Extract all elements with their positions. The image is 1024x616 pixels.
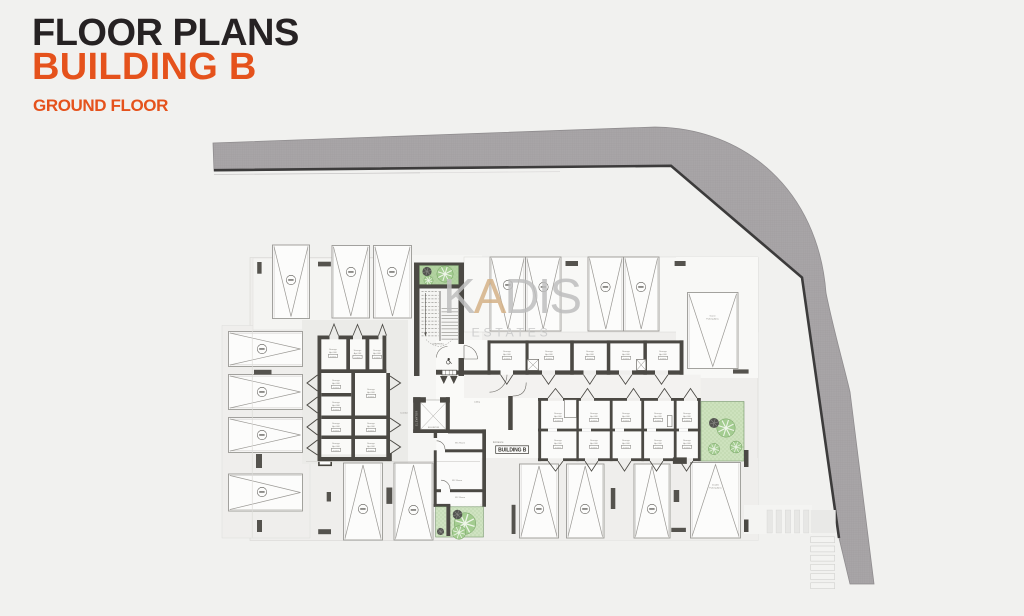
svg-text:0.00m: 0.00m bbox=[333, 387, 339, 389]
svg-text:Apt 000: Apt 000 bbox=[590, 442, 598, 445]
svg-text:KADIS: KADIS bbox=[443, 270, 580, 324]
svg-text:0.00m: 0.00m bbox=[591, 447, 597, 449]
svg-text:Entrance: Entrance bbox=[493, 440, 504, 444]
svg-text:Storage: Storage bbox=[683, 412, 691, 415]
svg-text:Storage: Storage bbox=[622, 412, 630, 415]
svg-text:0.00m: 0.00m bbox=[333, 450, 339, 452]
svg-text:BUILDING B: BUILDING B bbox=[498, 447, 527, 453]
svg-text:Apt 000: Apt 000 bbox=[332, 382, 340, 385]
svg-text:0.00m: 0.00m bbox=[684, 447, 690, 449]
svg-text:Apt 000: Apt 000 bbox=[367, 425, 375, 428]
svg-text:Storage: Storage bbox=[554, 439, 562, 442]
svg-text:Storage: Storage bbox=[654, 412, 662, 415]
svg-text:Apt 000: Apt 000 bbox=[503, 353, 511, 356]
svg-text:0.00m: 0.00m bbox=[684, 420, 690, 422]
svg-text:0.00m: 0.00m bbox=[655, 420, 661, 422]
svg-text:Storage: Storage bbox=[659, 350, 667, 353]
svg-text:Apt 000: Apt 000 bbox=[622, 442, 630, 445]
svg-text:0.00m: 0.00m bbox=[623, 447, 629, 449]
svg-text:0.00m: 0.00m bbox=[623, 358, 629, 360]
svg-text:Lobby: Lobby bbox=[474, 402, 481, 404]
svg-text:Apt 000: Apt 000 bbox=[332, 445, 340, 448]
svg-text:Apt 000: Apt 000 bbox=[545, 353, 553, 356]
svg-text:Storage: Storage bbox=[329, 348, 337, 351]
svg-text:Storage: Storage bbox=[373, 349, 381, 352]
svg-text:Storage: Storage bbox=[622, 439, 630, 442]
svg-text:Parking Area: Parking Area bbox=[706, 318, 719, 321]
svg-text:0.00m: 0.00m bbox=[354, 357, 360, 359]
svg-text:0.00m: 0.00m bbox=[504, 358, 510, 360]
svg-text:Storage: Storage bbox=[367, 388, 375, 391]
svg-text:0.00m: 0.00m bbox=[330, 356, 336, 358]
svg-text:STAIRWELL: STAIRWELL bbox=[432, 343, 445, 346]
svg-text:Apt 000: Apt 000 bbox=[659, 353, 667, 356]
svg-text:ELEVATOR: ELEVATOR bbox=[428, 426, 440, 429]
svg-text:ESTATES: ESTATES bbox=[472, 326, 552, 340]
svg-text:Apt 000: Apt 000 bbox=[354, 352, 362, 355]
svg-text:Apt 000: Apt 000 bbox=[654, 442, 662, 445]
svg-text:Double: Double bbox=[712, 485, 720, 487]
svg-text:WC Room: WC Room bbox=[455, 442, 465, 444]
svg-text:GROUND FLOOR: GROUND FLOOR bbox=[33, 96, 168, 115]
svg-text:Storage: Storage bbox=[367, 442, 375, 445]
svg-text:Apt 000: Apt 000 bbox=[654, 415, 662, 418]
svg-text:0.00m: 0.00m bbox=[333, 409, 339, 411]
svg-text:Storage: Storage bbox=[622, 350, 630, 353]
svg-text:Apt 000: Apt 000 bbox=[683, 442, 691, 445]
svg-text:Corridor: Corridor bbox=[400, 411, 408, 414]
svg-text:0.00m: 0.00m bbox=[591, 420, 597, 422]
svg-text:Storage: Storage bbox=[354, 349, 362, 352]
svg-text:Storage: Storage bbox=[590, 412, 598, 415]
svg-text:Storage: Storage bbox=[367, 422, 375, 425]
svg-text:0.00m: 0.00m bbox=[546, 358, 552, 360]
svg-text:0.00m: 0.00m bbox=[368, 450, 374, 452]
svg-text:ELEVATOR: ELEVATOR bbox=[416, 410, 419, 426]
svg-text:0.00m: 0.00m bbox=[587, 358, 593, 360]
svg-text:Storage: Storage bbox=[590, 439, 598, 442]
svg-text:0.00m: 0.00m bbox=[555, 447, 561, 449]
svg-text:Storage: Storage bbox=[332, 401, 340, 404]
svg-text:0.00m: 0.00m bbox=[368, 396, 374, 398]
svg-text:Parking Area: Parking Area bbox=[709, 487, 722, 490]
svg-text:0.00m: 0.00m bbox=[555, 420, 561, 422]
svg-text:Apt 000: Apt 000 bbox=[586, 353, 594, 356]
svg-text:Storage: Storage bbox=[332, 422, 340, 425]
svg-text:Apt 000: Apt 000 bbox=[332, 404, 340, 407]
svg-text:Apt 000: Apt 000 bbox=[329, 351, 337, 354]
svg-text:0.00m: 0.00m bbox=[655, 447, 661, 449]
svg-text:Apt 000: Apt 000 bbox=[554, 415, 562, 418]
svg-text:Storage: Storage bbox=[332, 379, 340, 382]
svg-text:BUILDING B: BUILDING B bbox=[32, 46, 257, 88]
svg-text:0.00m: 0.00m bbox=[333, 430, 339, 432]
svg-text:Guest: Guest bbox=[710, 315, 716, 318]
svg-text:Storage: Storage bbox=[503, 350, 511, 353]
svg-text:WC Room: WC Room bbox=[452, 480, 462, 482]
svg-text:Storage: Storage bbox=[683, 439, 691, 442]
svg-text:WC Room: WC Room bbox=[455, 497, 465, 499]
svg-text:Apt 000: Apt 000 bbox=[332, 425, 340, 428]
svg-text:Apt 000: Apt 000 bbox=[622, 353, 630, 356]
svg-text:Storage: Storage bbox=[545, 350, 553, 353]
svg-text:Storage: Storage bbox=[332, 442, 340, 445]
svg-text:Storage: Storage bbox=[654, 439, 662, 442]
svg-text:Apt 000: Apt 000 bbox=[590, 415, 598, 418]
svg-text:0.00m: 0.00m bbox=[623, 420, 629, 422]
svg-text:0.00m: 0.00m bbox=[660, 358, 666, 360]
svg-text:Storage: Storage bbox=[554, 412, 562, 415]
svg-text:Apt 000: Apt 000 bbox=[367, 445, 375, 448]
svg-text:Apt 000: Apt 000 bbox=[373, 352, 381, 355]
svg-text:Apt 000: Apt 000 bbox=[367, 391, 375, 394]
svg-text:Apt 000: Apt 000 bbox=[622, 415, 630, 418]
svg-text:Storage: Storage bbox=[586, 350, 594, 353]
svg-text:Apt 000: Apt 000 bbox=[683, 415, 691, 418]
svg-text:0.00m: 0.00m bbox=[374, 357, 380, 359]
svg-text:0.00m: 0.00m bbox=[368, 430, 374, 432]
svg-text:Apt 000: Apt 000 bbox=[554, 442, 562, 445]
